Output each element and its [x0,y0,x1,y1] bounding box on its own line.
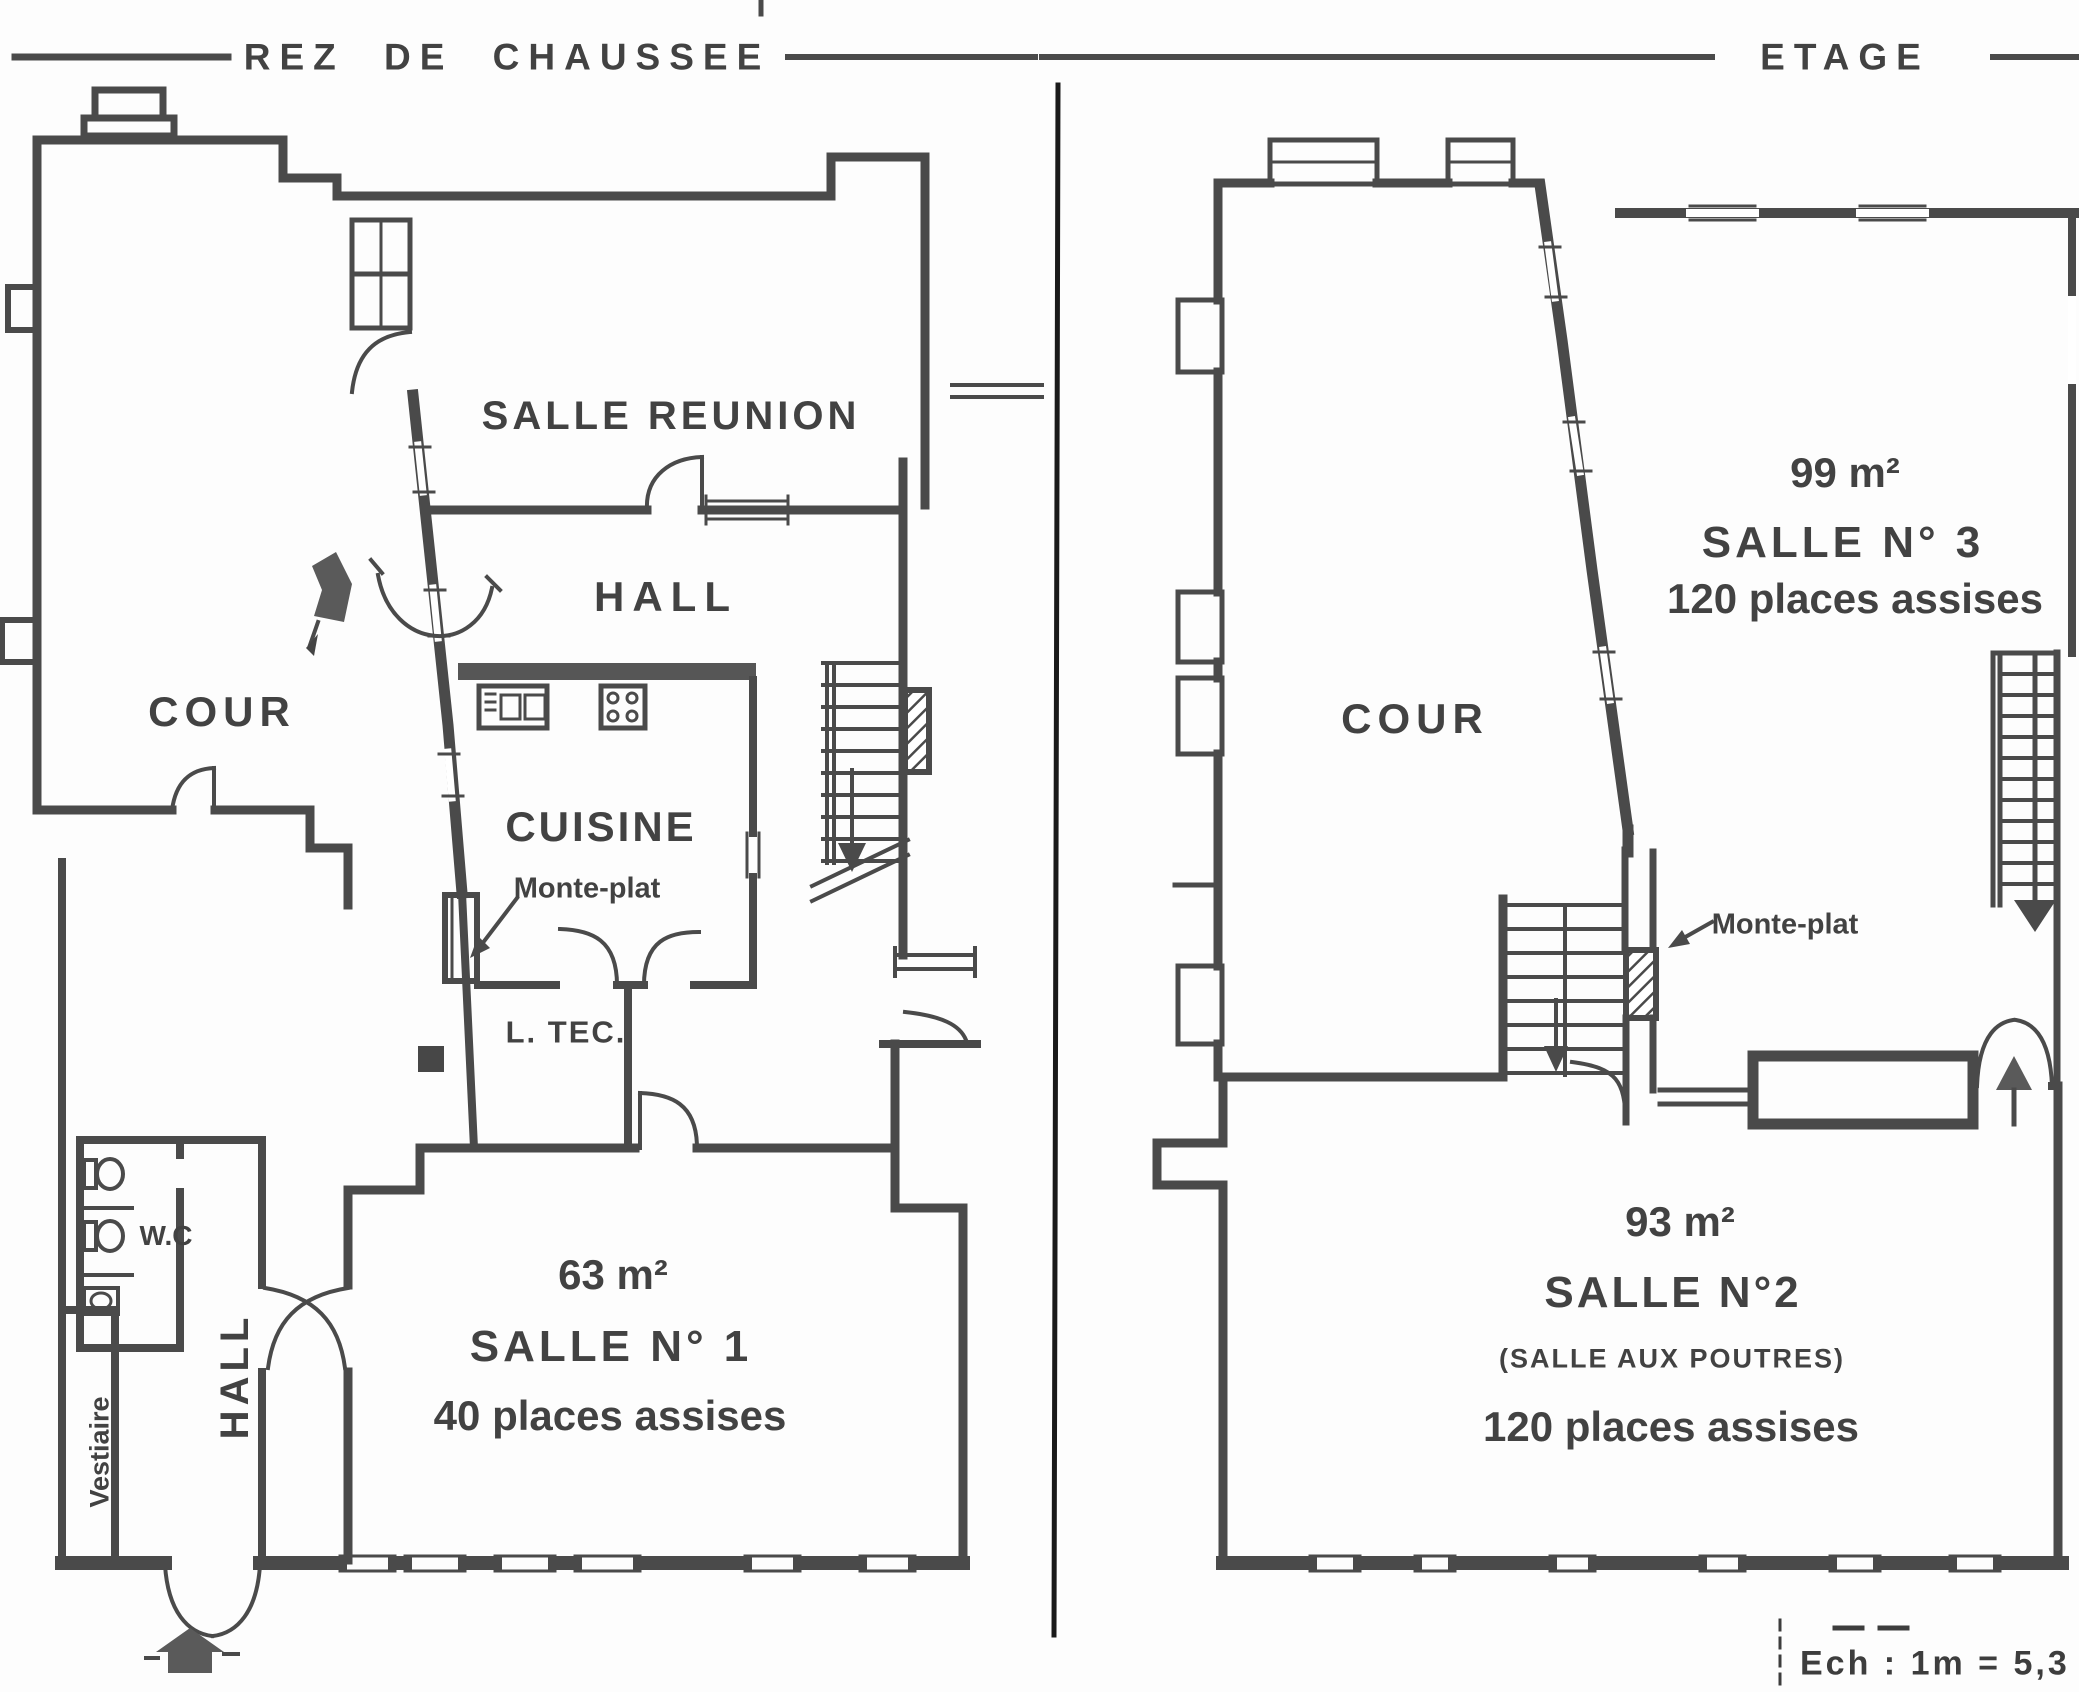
burner [608,711,618,721]
monte-plat-hatch-box [1626,950,1656,1018]
scale-note: Ech : 1m = 5,3 m [1800,1645,2079,1684]
salle2-subtitle-label: (SALLE AUX POUTRES) [1499,1346,1845,1373]
slant-wall-etage [1540,185,1628,852]
monte-plat-arrow [482,898,517,944]
salle-reunion-door [647,457,702,510]
room-label-hall-upper: HALL [594,576,738,618]
cooktop-icon [601,686,645,728]
chimney-base [84,118,174,136]
salle1-walls [348,1044,963,1560]
wall-pier [2,620,36,662]
vestibule-double-door [265,1288,348,1368]
ground-floor-title: REZ DE CHAUSSEE [244,39,771,76]
oven-door [525,695,545,719]
east-corridor-window [952,385,1042,397]
salle2-name-label: SALLE N°2 [1544,1271,1801,1315]
door-arc [165,1565,212,1636]
room-label-cour: COUR [148,691,296,733]
room-label-vestiaire: Vestiaire [87,1396,114,1507]
window-bay [1178,592,1222,662]
staircase-far-right [1993,653,2057,1083]
wall [1660,1090,1753,1104]
label-monte-plat-ground: Monte-plat [514,875,661,904]
toilet-tank-icon [84,1160,96,1188]
wall [413,157,925,505]
south-wall [62,1556,963,1571]
stair-steps [2000,674,2057,884]
salle2-capacity-label: 120 places assises [1483,1406,1859,1448]
kitchen-window [747,833,759,877]
salle1-door [640,1093,697,1148]
door-arc [647,457,702,510]
cour-etage-top-windows [1270,140,1513,184]
salle3-name-label: SALLE N° 3 [1702,521,1985,565]
stair-direction-arrowhead [2014,900,2056,932]
wall [37,140,413,196]
room-label-hall-lower: HALL [215,1313,255,1440]
main-entrance [146,1565,260,1673]
toilet-tank-icon [84,1222,96,1250]
burner [627,711,637,721]
door-arc [172,768,214,810]
arrowhead [1668,930,1690,948]
window-lines [952,385,1042,397]
staircase-etage [1503,850,1656,1122]
window-bay [1178,966,1222,1044]
label-monte-plat-etage: Monte-plat [1712,911,1859,940]
door-arc [644,932,699,985]
wall [37,810,348,905]
oven-door [501,695,520,719]
wall [895,1044,963,1560]
door-arc [268,1288,348,1368]
side-porch [883,948,977,1044]
stair-wall [1625,850,1653,950]
toilet-bowl-icon [97,1159,123,1189]
oven-icon [479,686,547,728]
arrow-shape [312,552,352,622]
floor-plan-sheet: REZ DE CHAUSSEE ETAGE SALLE REUNION HALL… [0,0,2079,1692]
cour-bottom-door [172,768,214,810]
room-label-salle-reunion: SALLE REUNION [482,396,861,436]
salle-reunion-walls [413,157,925,510]
landing-corridor [1660,1020,2058,1124]
room-label-wc: W.C [140,1222,193,1250]
door-arc [213,1565,260,1636]
door-arc [265,1288,345,1368]
salle3-capacity-label: 120 places assises [1667,578,2043,620]
toilet-bowl-icon [97,1221,123,1251]
wall [1157,1083,1223,1553]
entrance-arrow-icon [306,552,352,656]
salle2-walls [1157,1083,2062,1571]
vestibule-windows [352,220,410,392]
window-bay [1178,678,1222,754]
slant-wall [410,395,463,893]
oven-vents [486,694,495,710]
door-arc [1572,1062,1626,1120]
wall [462,893,474,1148]
cour-walls [37,140,413,905]
room-label-cuisine: CUISINE [505,806,696,848]
stair-rail [827,663,834,863]
staircase-ground [812,663,908,901]
monte-plat-arrow-etage [1668,922,1712,948]
salle1-area-label: 63 m² [558,1254,668,1296]
landing [1753,1056,1973,1124]
wall [1626,1018,1653,1122]
door-arc [640,1093,697,1148]
kitchen-counter-bar [458,663,756,680]
salle1-capacity-label: 40 places assises [434,1395,787,1437]
monte-plat-hatch-box [905,690,929,772]
room-label-cour-etage: COUR [1341,698,1489,740]
chimney [84,90,174,136]
salle3-area-label: 99 m² [1790,452,1900,494]
monte-plat-shaft-ground [445,895,517,981]
cour-etage-walls [1218,183,1540,1077]
up-arrow-icon [1996,1056,2032,1090]
upper-floor-title: ETAGE [1760,39,1930,76]
chimney-top [95,90,163,118]
plans-divider [1054,85,1058,1635]
room-label-ltec: L. TEC. [506,1017,627,1048]
wall [348,1148,420,1560]
dark-box [418,1046,444,1072]
door-arc [352,332,410,392]
burner [627,693,637,703]
door-arc [560,929,617,985]
salle2-area-label: 93 m² [1625,1201,1735,1243]
burner [608,693,618,703]
salle1-name-label: SALLE N° 1 [470,1325,753,1369]
window-bay [1178,300,1222,372]
door-arc [905,1012,966,1040]
